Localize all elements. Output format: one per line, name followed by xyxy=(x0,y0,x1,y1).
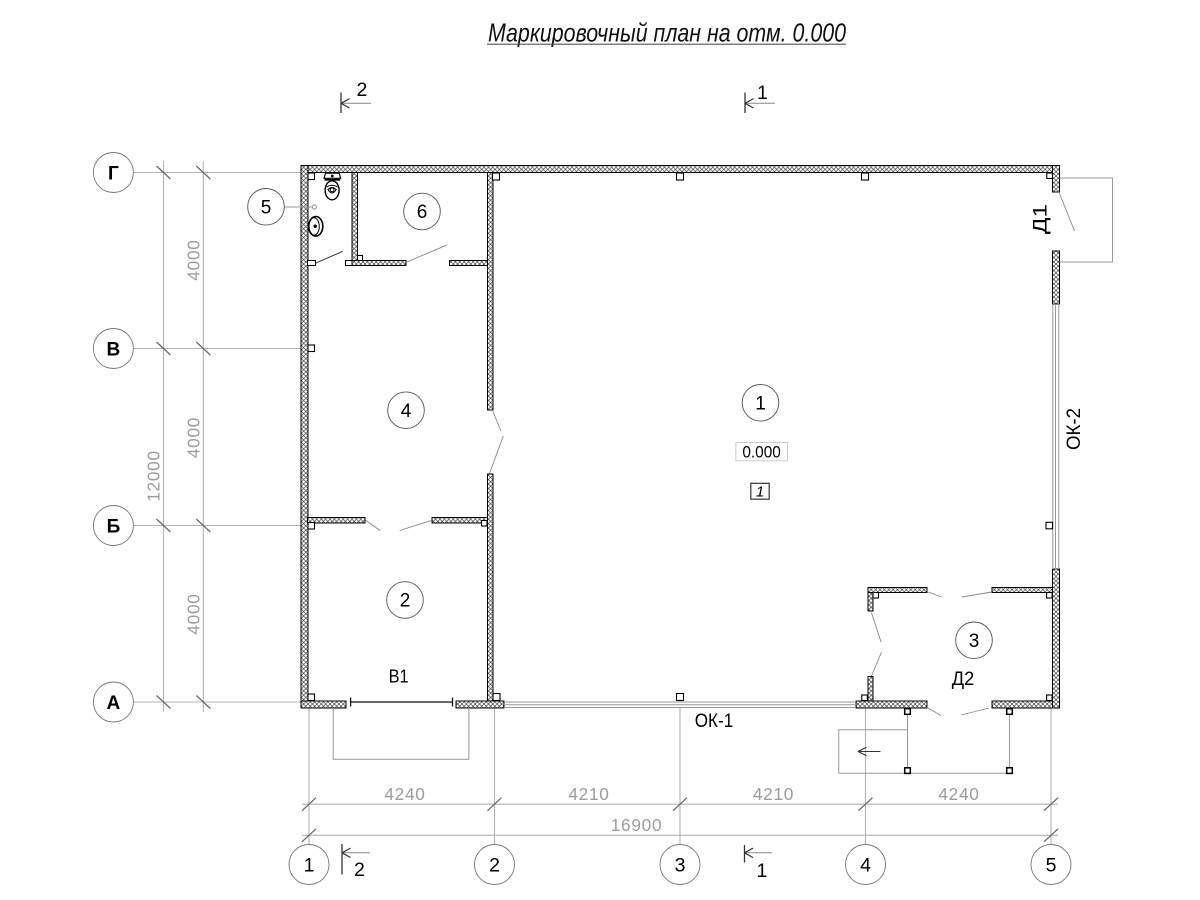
svg-text:1: 1 xyxy=(757,860,768,882)
svg-text:ОК-2: ОК-2 xyxy=(1064,408,1085,450)
svg-text:16900: 16900 xyxy=(611,815,663,835)
svg-text:2: 2 xyxy=(400,591,411,612)
svg-text:0.000: 0.000 xyxy=(742,443,781,462)
svg-text:2: 2 xyxy=(354,859,365,881)
svg-text:4: 4 xyxy=(860,855,871,877)
svg-text:4240: 4240 xyxy=(384,784,425,804)
svg-text:А: А xyxy=(107,693,121,714)
svg-text:6: 6 xyxy=(417,202,428,223)
svg-text:4240: 4240 xyxy=(938,784,979,804)
svg-text:4210: 4210 xyxy=(753,784,794,804)
svg-text:В1: В1 xyxy=(389,667,409,687)
svg-text:Д1: Д1 xyxy=(1031,204,1052,234)
svg-text:2: 2 xyxy=(489,855,500,877)
svg-text:Маркировочный план на отм. 0.0: Маркировочный план на отм. 0.000 xyxy=(488,17,846,47)
svg-text:5: 5 xyxy=(261,198,272,219)
svg-text:2: 2 xyxy=(357,79,368,101)
svg-text:1: 1 xyxy=(304,854,315,876)
svg-text:4000: 4000 xyxy=(184,593,204,634)
svg-text:В: В xyxy=(107,340,121,361)
svg-text:4: 4 xyxy=(401,401,412,422)
svg-text:Д2: Д2 xyxy=(952,669,975,690)
svg-text:12000: 12000 xyxy=(144,450,164,502)
svg-text:3: 3 xyxy=(675,855,686,877)
svg-text:1: 1 xyxy=(756,484,764,501)
svg-text:4000: 4000 xyxy=(184,239,204,280)
svg-text:5: 5 xyxy=(1046,855,1057,877)
svg-text:3: 3 xyxy=(969,631,980,652)
svg-text:Б: Б xyxy=(107,517,121,538)
svg-text:1: 1 xyxy=(757,82,768,104)
svg-text:4000: 4000 xyxy=(184,417,204,458)
svg-text:ОК-1: ОК-1 xyxy=(695,711,734,732)
svg-text:Г: Г xyxy=(108,164,119,185)
svg-text:4210: 4210 xyxy=(568,784,609,804)
svg-text:1: 1 xyxy=(755,394,766,415)
